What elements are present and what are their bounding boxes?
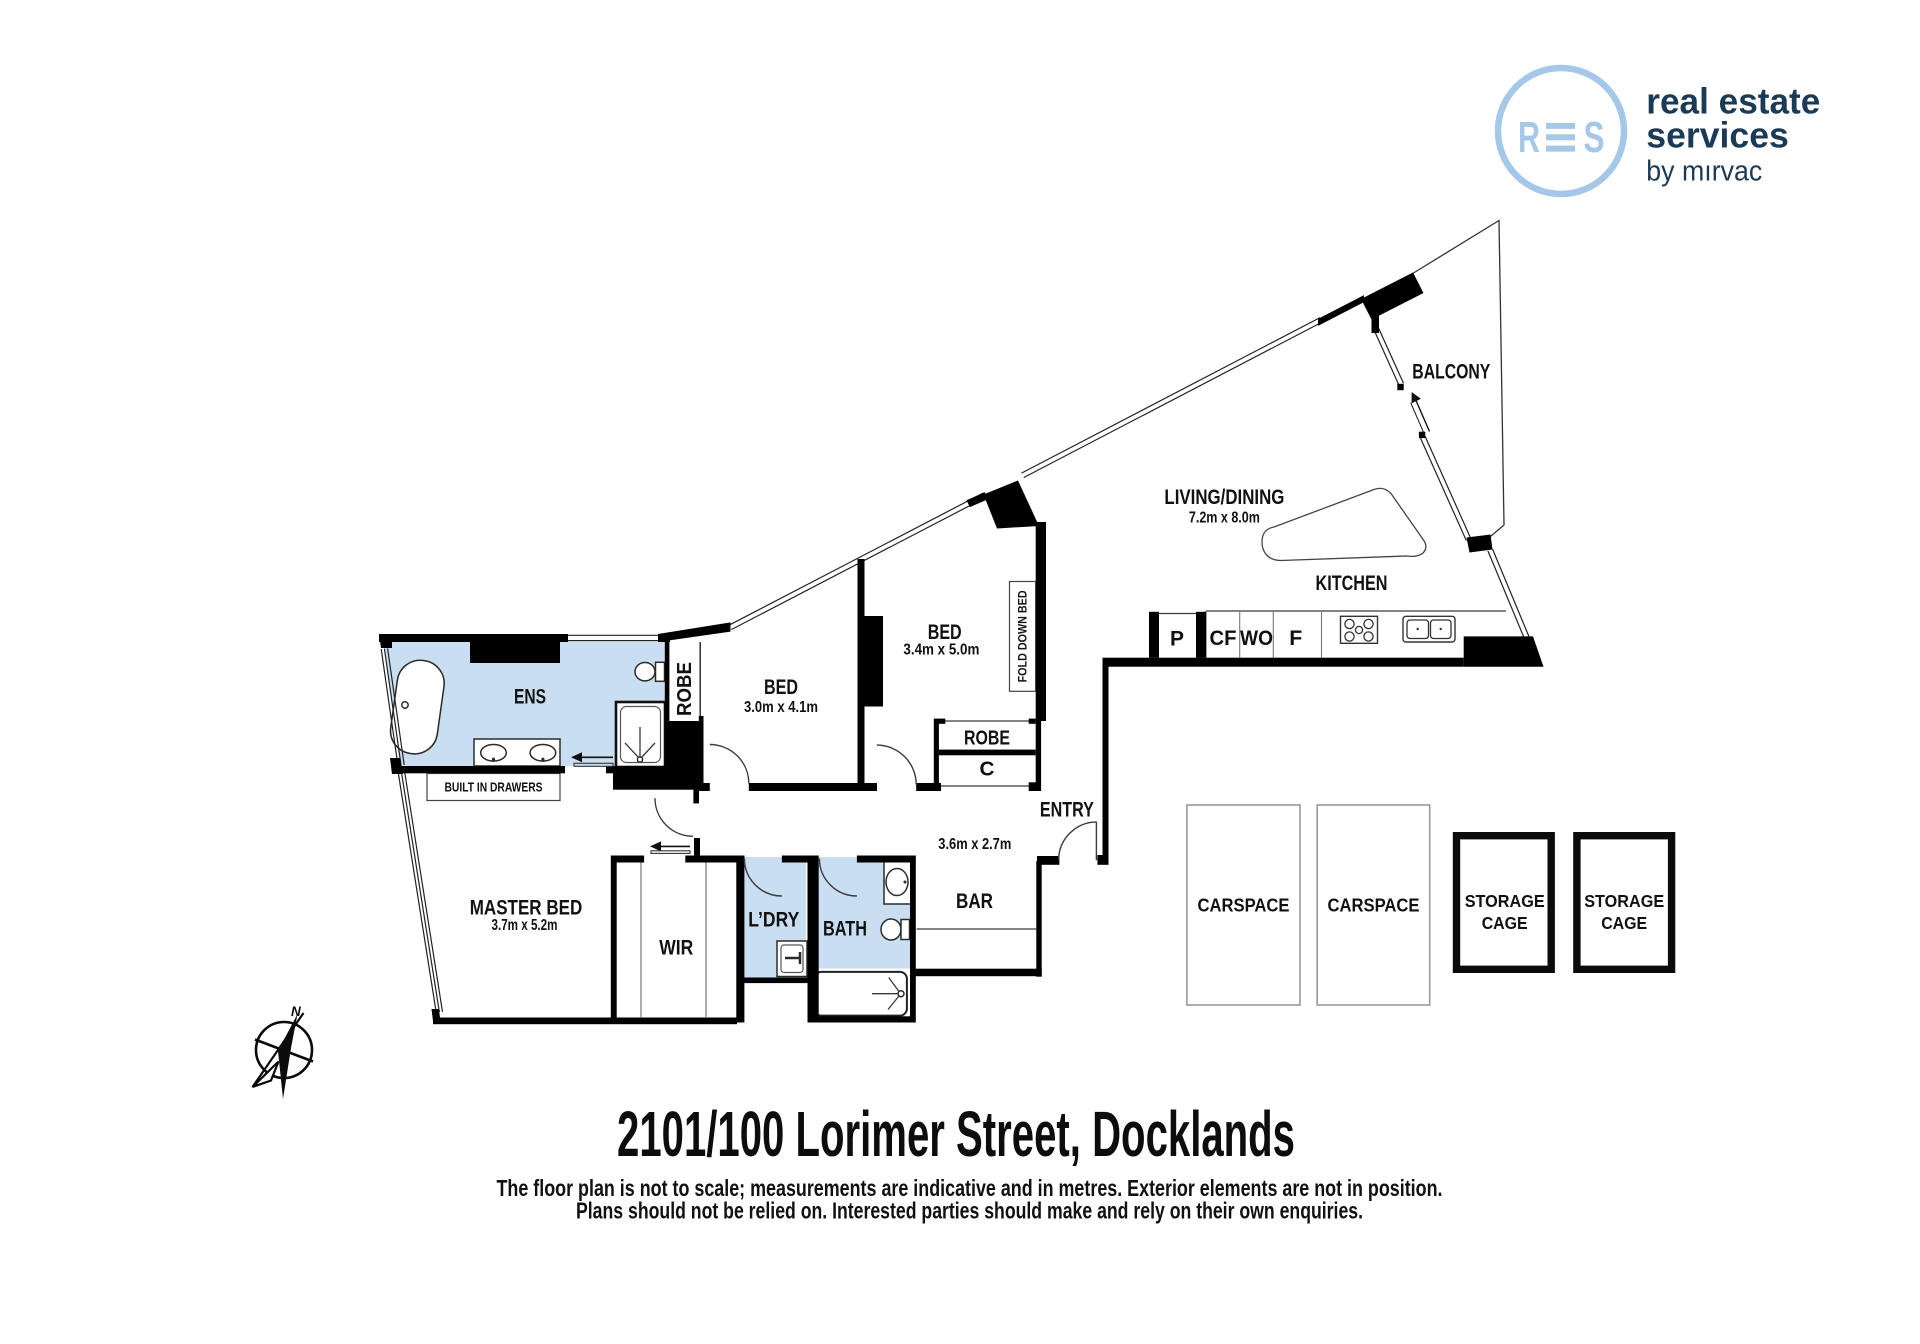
svg-text:R: R <box>1518 113 1540 162</box>
svg-text:BED: BED <box>764 675 798 699</box>
svg-text:services: services <box>1646 115 1789 156</box>
svg-text:P: P <box>1170 626 1184 650</box>
svg-text:ROBE: ROBE <box>964 728 1010 750</box>
svg-text:3.6m x 2.7m: 3.6m x 2.7m <box>938 836 1011 853</box>
svg-text:CAGE: CAGE <box>1601 913 1647 933</box>
svg-text:LIVING/DINING: LIVING/DINING <box>1164 485 1284 509</box>
svg-text:BALCONY: BALCONY <box>1412 359 1490 383</box>
svg-text:WIR: WIR <box>659 936 693 960</box>
svg-text:BUILT IN DRAWERS: BUILT IN DRAWERS <box>445 780 543 795</box>
svg-text:WO: WO <box>1240 626 1273 650</box>
svg-text:ENS: ENS <box>514 685 546 709</box>
svg-text:7.2m x 8.0m: 7.2m x 8.0m <box>1189 510 1260 527</box>
svg-text:ENTRY: ENTRY <box>1040 797 1094 821</box>
svg-text:Plans should not be relied on.: Plans should not be relied on. Intereste… <box>576 1198 1363 1224</box>
svg-text:N: N <box>291 1004 301 1019</box>
svg-text:CF: CF <box>1210 626 1237 650</box>
svg-text:L’DRY: L’DRY <box>748 908 799 932</box>
svg-text:3.7m x 5.2m: 3.7m x 5.2m <box>492 917 558 934</box>
svg-text:BATH: BATH <box>823 917 867 941</box>
svg-text:CARSPACE: CARSPACE <box>1328 895 1420 916</box>
svg-text:3.0m x 4.1m: 3.0m x 4.1m <box>744 699 818 716</box>
svg-text:KITCHEN: KITCHEN <box>1316 571 1388 595</box>
svg-text:MASTER BED: MASTER BED <box>470 896 583 920</box>
svg-text:C: C <box>980 759 995 781</box>
svg-text:FOLD DOWN BED: FOLD DOWN BED <box>1018 590 1030 682</box>
svg-text:STORAGE: STORAGE <box>1584 891 1664 911</box>
svg-text:2101/100 Lorimer Street, Dockl: 2101/100 Lorimer Street, Docklands <box>617 1098 1295 1170</box>
svg-text:3.4m x 5.0m: 3.4m x 5.0m <box>903 641 979 658</box>
svg-text:BAR: BAR <box>956 889 993 913</box>
svg-text:CAGE: CAGE <box>1482 913 1528 933</box>
svg-text:S: S <box>1584 113 1605 162</box>
svg-text:CARSPACE: CARSPACE <box>1198 895 1290 916</box>
svg-text:STORAGE: STORAGE <box>1465 891 1545 911</box>
svg-text:F: F <box>1289 626 1302 650</box>
svg-text:by mırvac: by mırvac <box>1646 156 1762 188</box>
svg-text:ROBE: ROBE <box>674 662 696 716</box>
